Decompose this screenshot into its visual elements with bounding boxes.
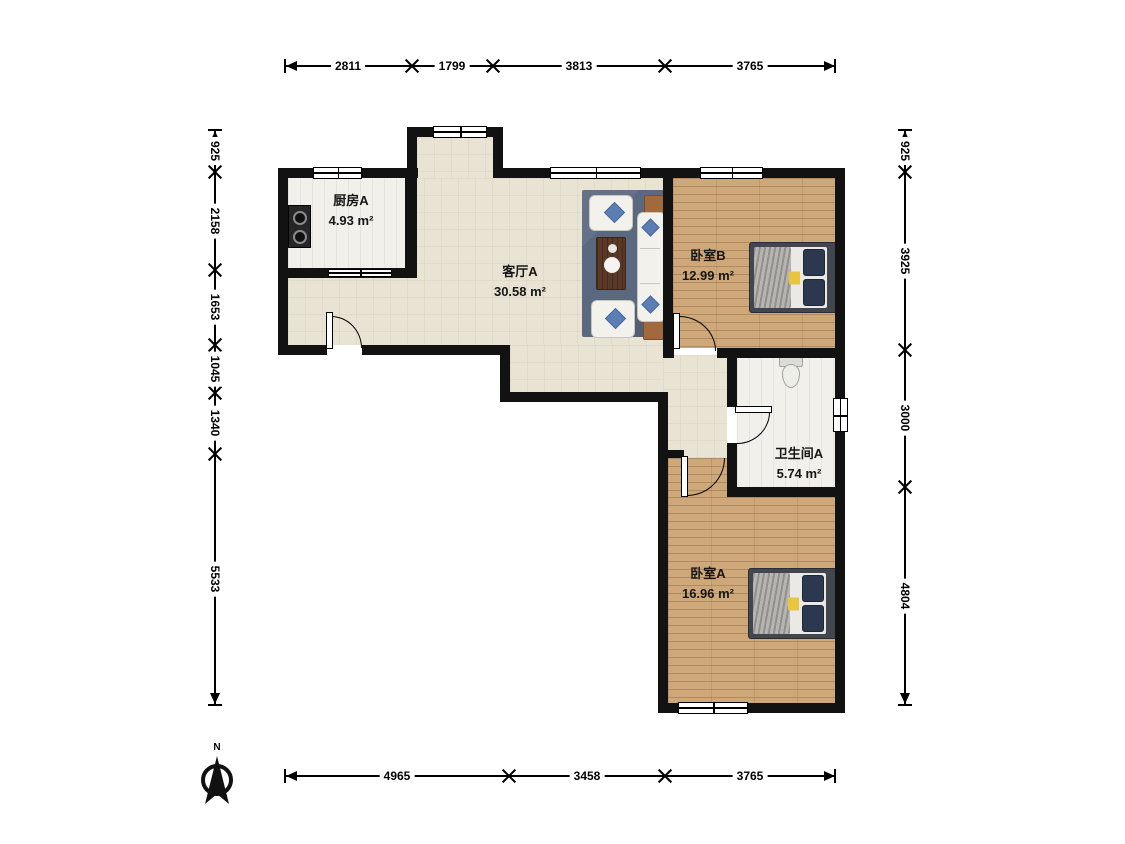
bedroom-a-door xyxy=(681,456,688,497)
kitchen-pass-through xyxy=(328,269,392,277)
dim-label: 1799 xyxy=(435,59,470,73)
dim-arrow xyxy=(824,771,835,781)
plate-icon xyxy=(604,257,620,273)
wall xyxy=(717,348,845,358)
dim-label: 3458 xyxy=(570,769,605,783)
window-bathroom xyxy=(833,398,848,432)
sofa xyxy=(637,212,666,322)
compass-north-label: N xyxy=(213,742,220,753)
dim-arrow xyxy=(286,771,297,781)
room-name: 卧室B xyxy=(682,246,734,266)
window-living-room xyxy=(550,167,641,179)
throw-pillow xyxy=(641,218,659,236)
room-label-living: 客厅A 30.58 m² xyxy=(494,262,546,302)
dim-tick xyxy=(500,767,518,785)
side-table xyxy=(643,320,664,340)
wall xyxy=(663,178,673,358)
dim-label: 3765 xyxy=(733,769,768,783)
dim-tick xyxy=(206,384,224,402)
room-label-bedroom-a: 卧室A 16.96 m² xyxy=(682,564,734,604)
room-name: 厨房A xyxy=(329,191,374,211)
throw-pillow xyxy=(604,202,625,223)
bed-bedroom-a xyxy=(748,568,838,639)
dim-end-bar xyxy=(898,704,912,706)
room-area: 12.99 m² xyxy=(682,266,734,286)
dim-tick xyxy=(656,57,674,75)
wall xyxy=(727,487,845,497)
dim-label: 4965 xyxy=(380,769,415,783)
wall xyxy=(727,358,737,407)
wall xyxy=(500,392,668,402)
armchair xyxy=(589,195,633,231)
room-area: 4.93 m² xyxy=(329,211,374,231)
dim-tick xyxy=(656,767,674,785)
sofa-cushion-line xyxy=(640,283,660,284)
room-label-bathroom: 卫生间A 5.74 m² xyxy=(775,444,823,484)
stove-icon xyxy=(288,205,311,248)
dim-label: 1653 xyxy=(208,290,222,325)
dim-arrow xyxy=(824,61,835,71)
entry-door xyxy=(326,312,333,349)
bathroom-door xyxy=(735,406,772,413)
window-kitchen xyxy=(313,167,362,179)
pillow xyxy=(803,249,825,276)
room-area: 16.96 m² xyxy=(682,584,734,604)
coffee-table xyxy=(596,237,626,290)
compass: N xyxy=(192,742,242,814)
bed-bedroom-b xyxy=(749,242,839,313)
dim-arrow xyxy=(286,61,297,71)
room-name: 卫生间A xyxy=(775,444,823,464)
dim-label: 5533 xyxy=(208,562,222,597)
plate-icon xyxy=(608,244,617,253)
dim-tick xyxy=(896,163,914,181)
toilet-icon xyxy=(779,357,803,389)
armchair xyxy=(591,300,635,338)
dim-end-bar xyxy=(208,704,222,706)
wall xyxy=(835,168,845,713)
room-area: 5.74 m² xyxy=(775,464,823,484)
dim-tick xyxy=(206,261,224,279)
pillow xyxy=(802,575,824,602)
room-area: 30.58 m² xyxy=(494,282,546,302)
dim-label: 3000 xyxy=(898,401,912,436)
dim-arrow xyxy=(210,693,220,704)
room-name: 卧室A xyxy=(682,564,734,584)
dim-arrow xyxy=(900,693,910,704)
accent-cushion xyxy=(788,597,799,610)
window-entry-alcove xyxy=(433,126,487,138)
dim-tick xyxy=(896,478,914,496)
dim-tick xyxy=(206,445,224,463)
throw-pillow xyxy=(605,308,626,329)
room-name: 客厅A xyxy=(494,262,546,282)
dim-label: 2811 xyxy=(331,59,365,73)
dim-label: 1045 xyxy=(208,352,222,387)
dim-label: 3813 xyxy=(562,59,597,73)
floor-plan-canvas: 厨房A 4.93 m² 客厅A 30.58 m² 卧室B 12.99 m² 卫生… xyxy=(0,0,1125,844)
accent-cushion xyxy=(789,271,800,284)
pillow xyxy=(803,279,825,306)
window-bedroom-b xyxy=(700,167,763,179)
throw-pillow xyxy=(641,295,659,313)
dim-label: 4804 xyxy=(898,579,912,614)
window-bedroom-a xyxy=(678,702,748,714)
hallway-floor xyxy=(663,355,727,458)
dim-label: 925 xyxy=(208,137,222,165)
room-label-kitchen: 厨房A 4.93 m² xyxy=(329,191,374,231)
burner-icon xyxy=(293,230,307,244)
wall xyxy=(658,392,668,713)
dim-label: 1340 xyxy=(208,406,222,441)
wall xyxy=(278,168,288,355)
dim-label: 3925 xyxy=(898,244,912,279)
wall xyxy=(493,168,845,178)
dim-tick xyxy=(206,163,224,181)
bedroom-b-door xyxy=(673,313,680,349)
wall xyxy=(362,345,510,355)
entry-alcove-floor xyxy=(417,137,493,178)
dim-tick xyxy=(896,341,914,359)
room-label-bedroom-b: 卧室B 12.99 m² xyxy=(682,246,734,286)
wall xyxy=(405,178,417,278)
dim-label: 3765 xyxy=(733,59,768,73)
dim-tick xyxy=(403,57,421,75)
blanket xyxy=(754,247,791,308)
dim-tick xyxy=(484,57,502,75)
blanket xyxy=(753,573,790,634)
pillow xyxy=(802,605,824,632)
wall xyxy=(663,348,674,358)
burner-icon xyxy=(293,211,307,225)
compass-arrow-icon xyxy=(192,754,242,814)
toilet-bowl xyxy=(782,364,800,388)
sofa-cushion-line xyxy=(640,248,660,249)
dim-label: 925 xyxy=(898,137,912,165)
dim-label: 2158 xyxy=(208,204,222,239)
